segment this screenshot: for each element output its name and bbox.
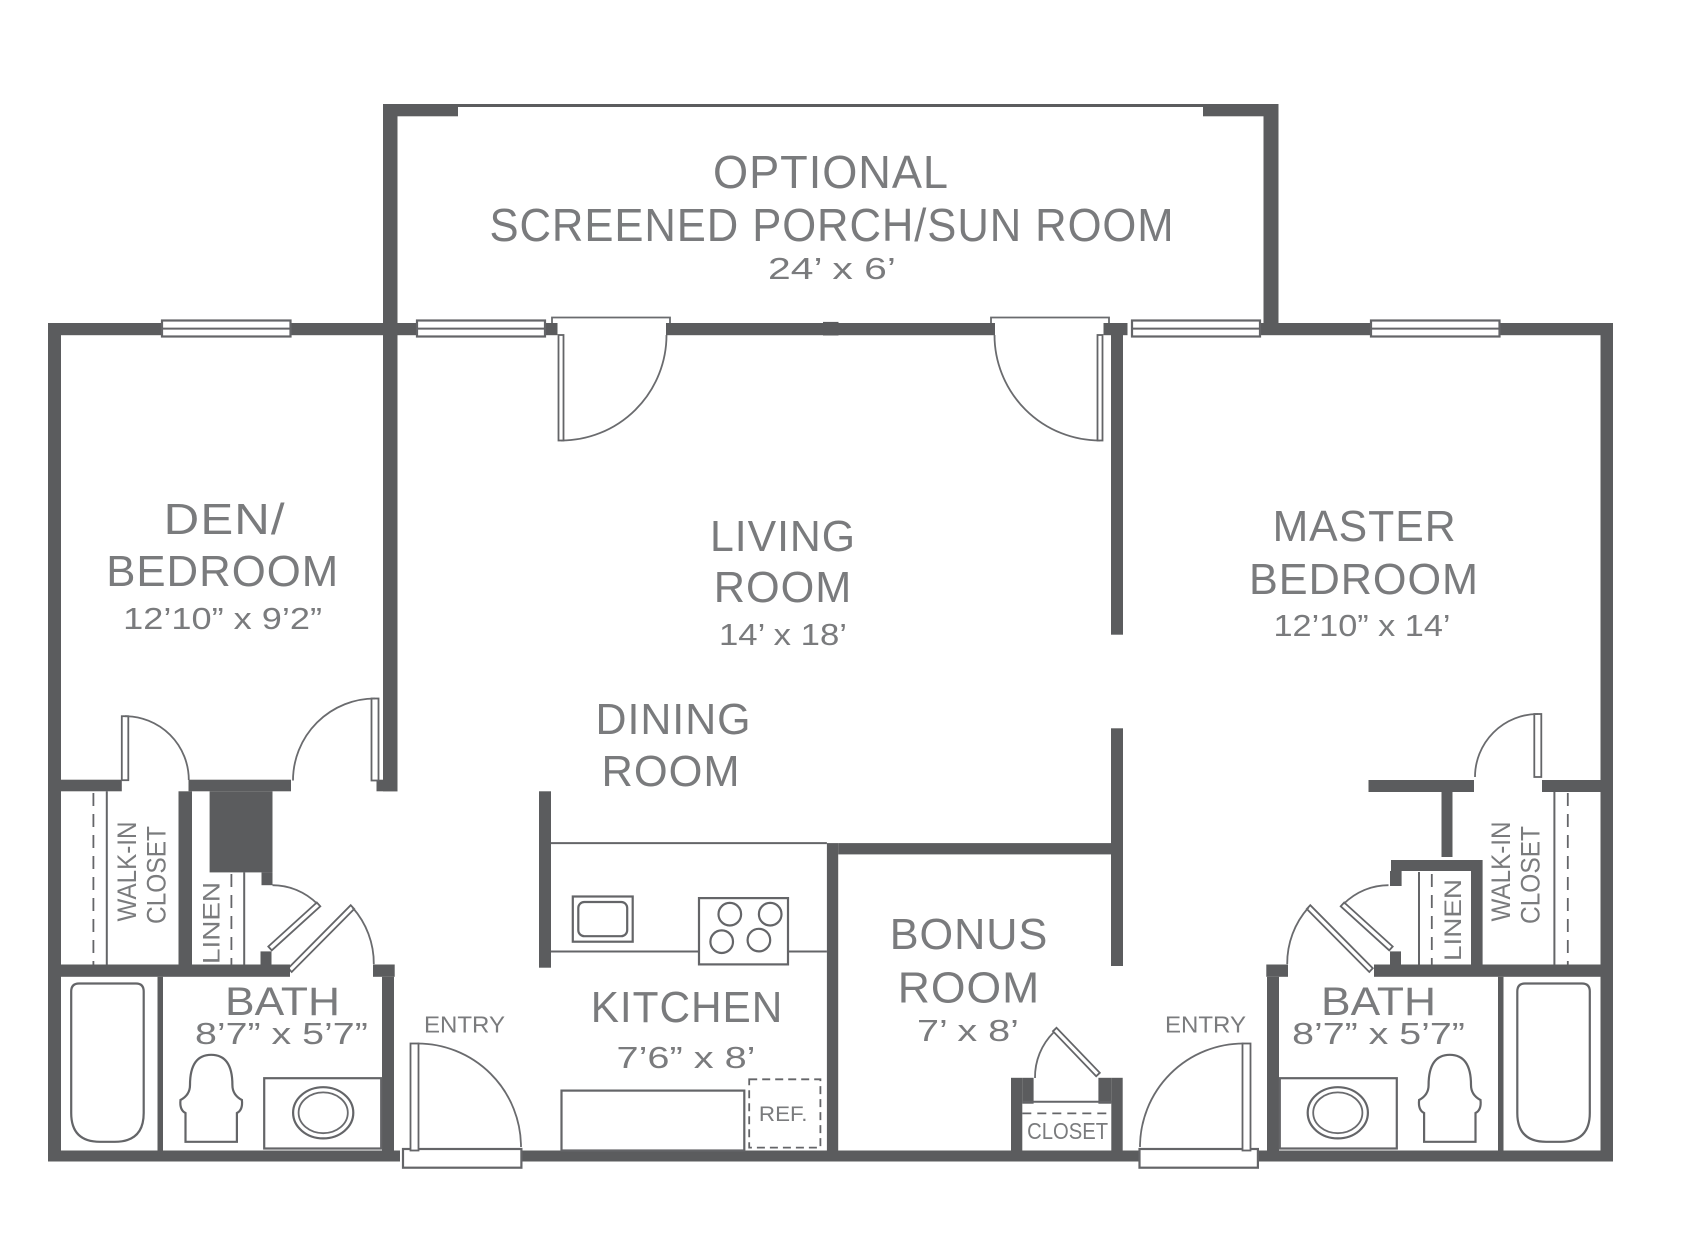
svg-text:14’ x 18’: 14’ x 18’ [719,617,847,652]
svg-text:12’10” x 14’: 12’10” x 14’ [1274,608,1451,643]
svg-text:7’ x 8’: 7’ x 8’ [917,1013,1019,1048]
svg-text:MASTER: MASTER [1273,502,1457,551]
svg-text:ENTRY: ENTRY [1165,1012,1246,1038]
svg-text:SCREENED PORCH/SUN ROOM: SCREENED PORCH/SUN ROOM [490,199,1175,251]
svg-text:24’ x 6’: 24’ x 6’ [768,251,896,286]
svg-text:BONUS: BONUS [890,910,1049,959]
svg-text:BEDROOM: BEDROOM [106,547,339,596]
svg-text:OPTIONAL: OPTIONAL [713,146,949,198]
svg-text:DINING: DINING [596,695,752,744]
svg-text:LIVING: LIVING [710,512,856,561]
svg-text:12’10” x 9’2”: 12’10” x 9’2” [123,601,322,636]
svg-text:ROOM: ROOM [714,563,853,612]
svg-text:8’7” x 5’7”: 8’7” x 5’7” [1292,1016,1465,1051]
svg-text:WALK-IN: WALK-IN [1486,822,1516,922]
svg-text:LINEN: LINEN [1440,879,1467,961]
svg-text:CLOSET: CLOSET [142,826,172,924]
svg-text:7’6” x 8’: 7’6” x 8’ [617,1040,756,1075]
svg-text:LINEN: LINEN [199,882,226,964]
svg-text:CLOSET: CLOSET [1516,826,1546,924]
svg-text:ROOM: ROOM [898,964,1040,1013]
svg-text:ROOM: ROOM [602,747,741,796]
svg-text:ENTRY: ENTRY [424,1012,505,1038]
svg-text:BEDROOM: BEDROOM [1249,555,1479,604]
svg-text:8’7” x 5’7”: 8’7” x 5’7” [195,1016,368,1051]
svg-text:REF.: REF. [759,1103,808,1126]
svg-text:WALK-IN: WALK-IN [112,822,142,922]
svg-text:DEN/: DEN/ [164,495,286,544]
svg-text:CLOSET: CLOSET [1027,1118,1108,1144]
svg-text:KITCHEN: KITCHEN [591,983,784,1032]
